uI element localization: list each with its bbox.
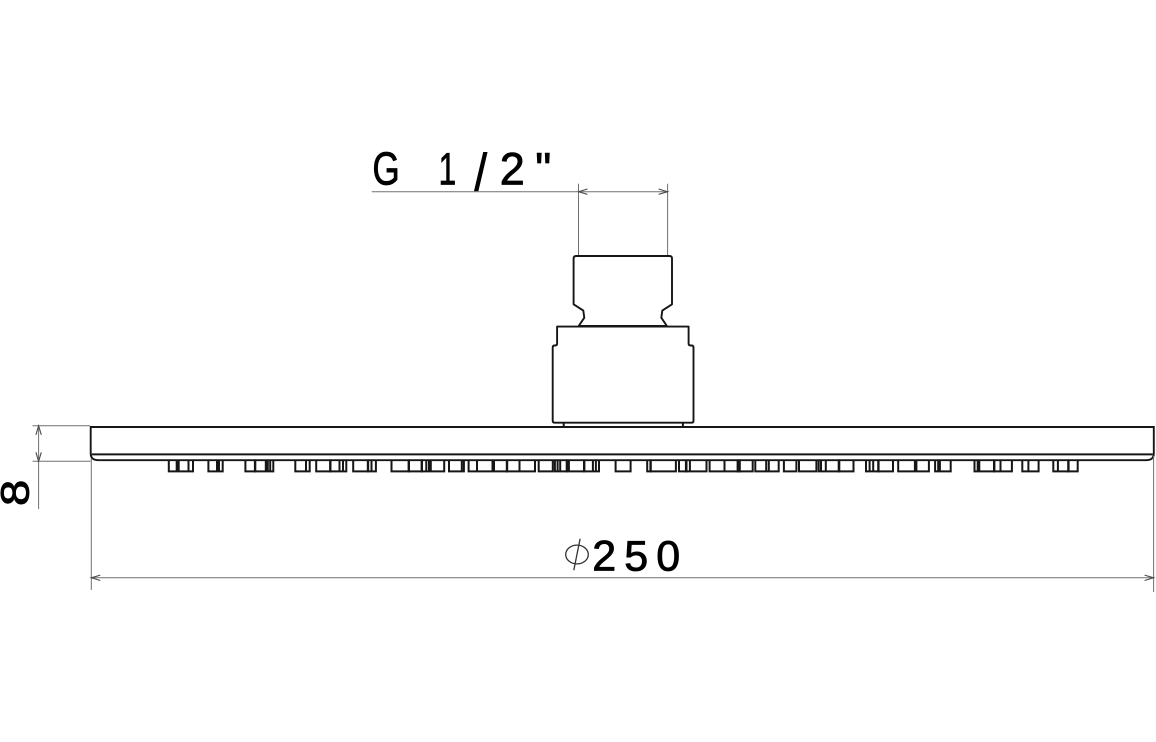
svg-text:": " xyxy=(535,143,551,194)
svg-text:/: / xyxy=(475,144,488,202)
svg-text:250: 250 xyxy=(592,533,688,581)
svg-text:2: 2 xyxy=(500,143,525,194)
svg-text:8: 8 xyxy=(0,480,38,506)
svg-text:1: 1 xyxy=(439,145,457,195)
svg-text:G: G xyxy=(373,143,400,195)
